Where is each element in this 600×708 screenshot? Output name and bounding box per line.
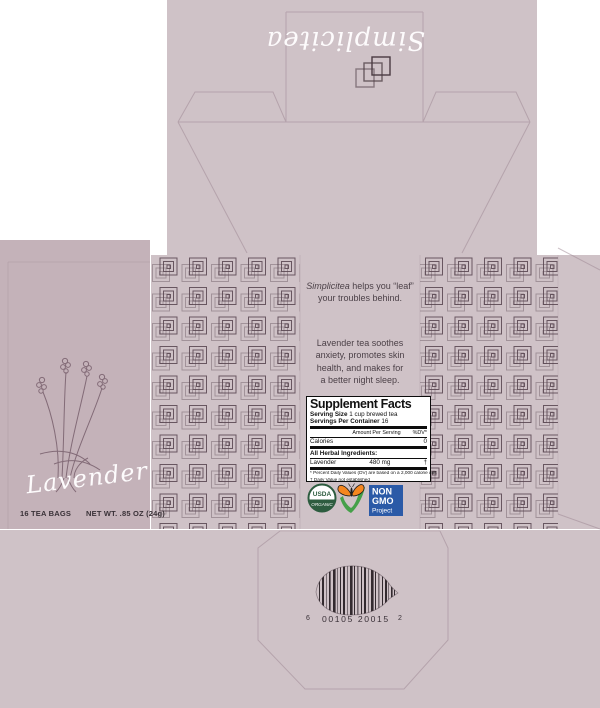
barcode-check-digit: 2	[398, 615, 402, 622]
bottom-flap-panel	[0, 530, 600, 708]
thick-rule	[310, 426, 427, 429]
description-line: a better night sleep.	[298, 374, 422, 386]
description-line: health, and makes for	[298, 362, 422, 374]
tea-box-dieline: USDA ORGANIC NON GMO Project Simplicitea…	[0, 0, 600, 708]
product-description: Lavender tea soothes anxiety, promotes s…	[298, 337, 422, 387]
dv-footnote-2: † Daily Value not established	[310, 478, 427, 483]
supplement-facts-label: Supplement Facts Serving Size 1 cup brew…	[306, 396, 431, 482]
dv-footnote: * Percent Daily Values (DV) are based on…	[310, 471, 427, 476]
net-weight: NET WT. .85 OZ (24g)	[86, 509, 165, 518]
tea-bag-count: 16 TEA BAGS	[20, 509, 71, 518]
barcode-digits: 00105 20015	[322, 614, 390, 624]
thick-rule	[310, 446, 427, 449]
description-line: Lavender tea soothes	[298, 337, 422, 349]
tagline-line1-rest: helps you “leaf”	[350, 281, 414, 291]
servings-per-container-row: Servings Per Container 16	[310, 418, 427, 425]
supplement-facts-title: Supplement Facts	[310, 398, 427, 411]
thick-rule	[310, 467, 427, 470]
tagline: Simplicitea helps you “leaf” your troubl…	[298, 280, 422, 304]
brand-logo-script: Simplicitea	[280, 14, 425, 66]
tagline-line1: Simplicitea helps you “leaf”	[298, 280, 422, 292]
calories-row: Calories0	[310, 438, 427, 446]
ingredient-row: Lavender480 mg†	[310, 459, 427, 467]
serving-size-row: Serving Size 1 cup brewed tea	[310, 411, 427, 418]
tagline-line2: your troubles behind.	[298, 292, 422, 304]
herbal-ingredients-header: All Herbal Ingredients:	[310, 450, 427, 458]
description-line: anxiety, promotes skin	[298, 349, 422, 361]
tagline-brand: Simplicitea	[306, 281, 350, 291]
barcode-prefix-digit: 6	[306, 615, 310, 622]
